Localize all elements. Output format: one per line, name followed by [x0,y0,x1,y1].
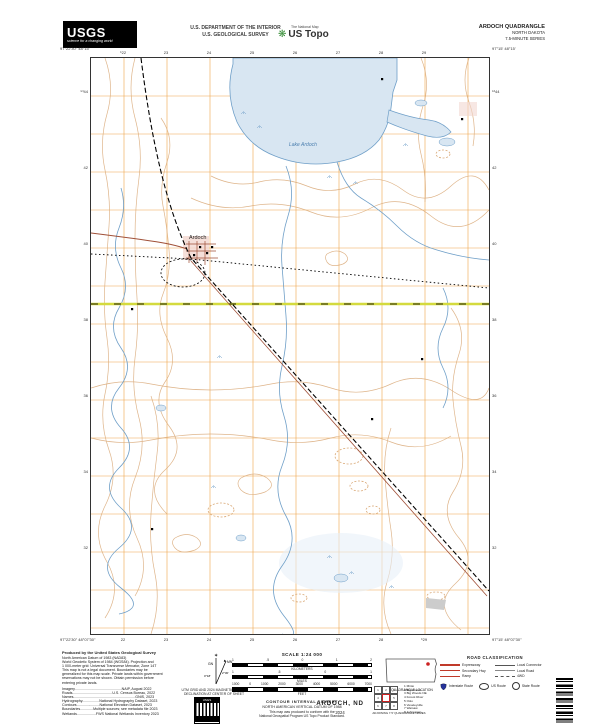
corner-bottom-right: 97°15' 48°07'30" [492,637,522,642]
north-dakota-outline [386,659,437,682]
legend-label: 4WD [517,674,525,678]
legend-label: Local Connector [517,663,542,667]
barcode [556,678,573,724]
usgs-logo-text: USGS [67,26,137,39]
utm-top-label: ⁶22 [120,50,126,55]
utm-right-label: 34 [492,469,496,474]
credits-line: entering private lands. [62,681,182,685]
fourwd-line [495,676,515,677]
map-area: Ardoch Lake Ardoch [90,57,490,635]
usgs-logo-tagline: science for a changing world [67,39,137,43]
corner-br-lat: 48°07'30" [504,637,521,642]
corner-tr-lat: 48°15' [504,46,515,51]
lake-arm [387,110,451,137]
corner-tl-lon: 97°22'30" [60,46,77,51]
ustopo-flower-icon: ❋ [278,30,286,40]
ustopo-name: US Topo [288,29,328,40]
adj-cell: 8 [390,702,398,710]
corner-top-right: 97°15' 48°15' [492,46,516,51]
utm-bottom-label: 22 [121,637,125,642]
ramp-line [440,676,460,677]
corner-bl-lat: 48°07'30" [78,637,95,642]
tick: 1 [336,659,338,663]
utm-right-label: 32 [492,545,496,550]
tick: 1 [232,671,234,675]
quad-location-dot [426,662,430,666]
adj-cell: 5 [390,694,398,702]
shield-label: US Route [491,684,506,688]
tick: 1 [232,659,234,663]
credits-block: Produced by the United States Geological… [62,651,182,716]
qr-footer [195,716,219,722]
adj-cell: 1 [374,686,382,694]
tick: 1000 [232,683,239,687]
legend-label: Secondary Hwy [462,669,486,673]
utm-right-label: 40 [492,241,496,246]
tick: .5 [278,671,281,675]
tick: .5 [266,659,269,663]
tick: 3000 [296,683,303,687]
tick: 0 [302,659,304,663]
road-classification-title: ROAD CLASSIFICATION [440,655,550,660]
lagoon-loop [161,259,205,287]
tick: 1000 [261,683,268,687]
corner-br-lon: 97°15' [492,637,503,642]
utm-top-label: 25 [250,50,254,55]
adj-cell: 2 [382,686,390,694]
qr-pattern [195,703,219,716]
tick: 5000 [330,683,337,687]
utm-left-label: 40 [72,241,88,246]
ponds [156,100,455,582]
scale-title: SCALE 1:24 000 [230,652,374,657]
utm-left-label: 32 [72,545,88,550]
wetland-area [279,533,403,593]
legend-row: 4WD [495,674,550,680]
town-label: Ardoch [189,235,206,241]
utm-bottom-label: 24 [207,637,211,642]
qr-code-block: USGS [194,697,220,724]
utm-bottom-label: 28 [379,637,383,642]
utm-left-label: 38 [72,317,88,322]
utm-top-label: 29 [422,50,426,55]
state-route-shield-item: State Route [512,682,540,690]
credits-source-line: Wetlands...................FWS National … [62,712,182,716]
utm-right-label: ⁵³44 [492,89,499,94]
usgs-logo: USGS science for a changing world [63,21,137,48]
utm-bottom-label: 23 [164,637,168,642]
us-route-shield-item: US Route [479,683,506,690]
state-route-shield-icon [512,682,520,690]
corner-tr-lon: 97°15' [492,46,503,51]
gravel-pit [426,598,446,610]
tick: 4000 [313,683,320,687]
corner-bl-lon: 97°22'30" [60,637,77,642]
utm-left-label: 36 [72,393,88,398]
tick: 6000 [347,683,354,687]
corner-bottom-left: 97°22'30" 48°07'30" [60,637,95,642]
tick: 2000 [278,683,285,687]
railroad-eastwest [91,254,489,288]
sheet-name: ARDOCH, ND [290,700,390,707]
legend-label: Expressway [462,663,480,667]
utm-bottom-label: 26 [293,637,297,642]
marsh-symbols [211,111,408,588]
scale-feet-unit: FEET [230,692,374,696]
shield-label: State Route [522,684,540,688]
adj-cell: 3 [390,686,398,694]
local-connector-line [495,665,515,666]
ustopo-logo: The National Map ❋ US Topo [278,25,348,40]
utm-left-label: 42 [72,165,88,170]
utm-right-label: 38 [492,317,496,322]
map-canvas: Ardoch Lake Ardoch [91,58,489,634]
utm-bottom-label: 25 [250,637,254,642]
expressway-line [440,664,460,666]
utm-top-label: 27 [336,50,340,55]
utm-left-label: ⁵³44 [72,89,88,94]
utm-top-label: 23 [164,50,168,55]
tick: 7000 [365,683,372,687]
utm-right-label: 42 [492,165,496,170]
utm-left-label: 34 [72,469,88,474]
secondary-hwy-line [440,670,460,671]
lake-polygon [230,58,397,164]
scale-block: SCALE 1:24 000 1 .5 0 1 2 KILOMETERS 1 .… [230,652,374,718]
legend-label: Ramp [462,674,471,678]
quadrangle-heading: ARDOCH QUADRANGLE NORTH DAKOTA 7.5-MINUT… [385,24,545,42]
gn-label: GN [208,662,214,666]
tick: 0 [324,671,326,675]
tick: 1 [370,671,372,675]
mn-value: 2°30' [222,671,229,675]
tick: 0 [249,683,251,687]
legend-row: Ramp [440,674,495,680]
utm-top-label: 24 [207,50,211,55]
utm-right-label: 36 [492,393,496,398]
quad-series: 7.5-MINUTE SERIES [385,36,545,42]
tick: 2 [370,659,372,663]
utm-bottom-label: 27 [336,637,340,642]
lake-label: Lake Ardoch [289,142,317,148]
us-route-shield-icon [479,683,489,690]
corner-tl-lat: 48°15' [78,46,89,51]
usgs-topo-sheet: USGS science for a changing world U.S. D… [0,0,600,725]
legend-label: Local Road [517,669,534,673]
utm-top-label: 28 [379,50,383,55]
roads [91,233,487,596]
gn-value: 0°18' [204,674,211,678]
local-road-line [495,670,515,671]
utm-bottom-label: ⁶29 [421,637,427,642]
utm-top-label: 26 [293,50,297,55]
sheet-year: 2024 [290,710,390,715]
corner-top-left: 97°22'30" 48°15' [60,46,90,51]
